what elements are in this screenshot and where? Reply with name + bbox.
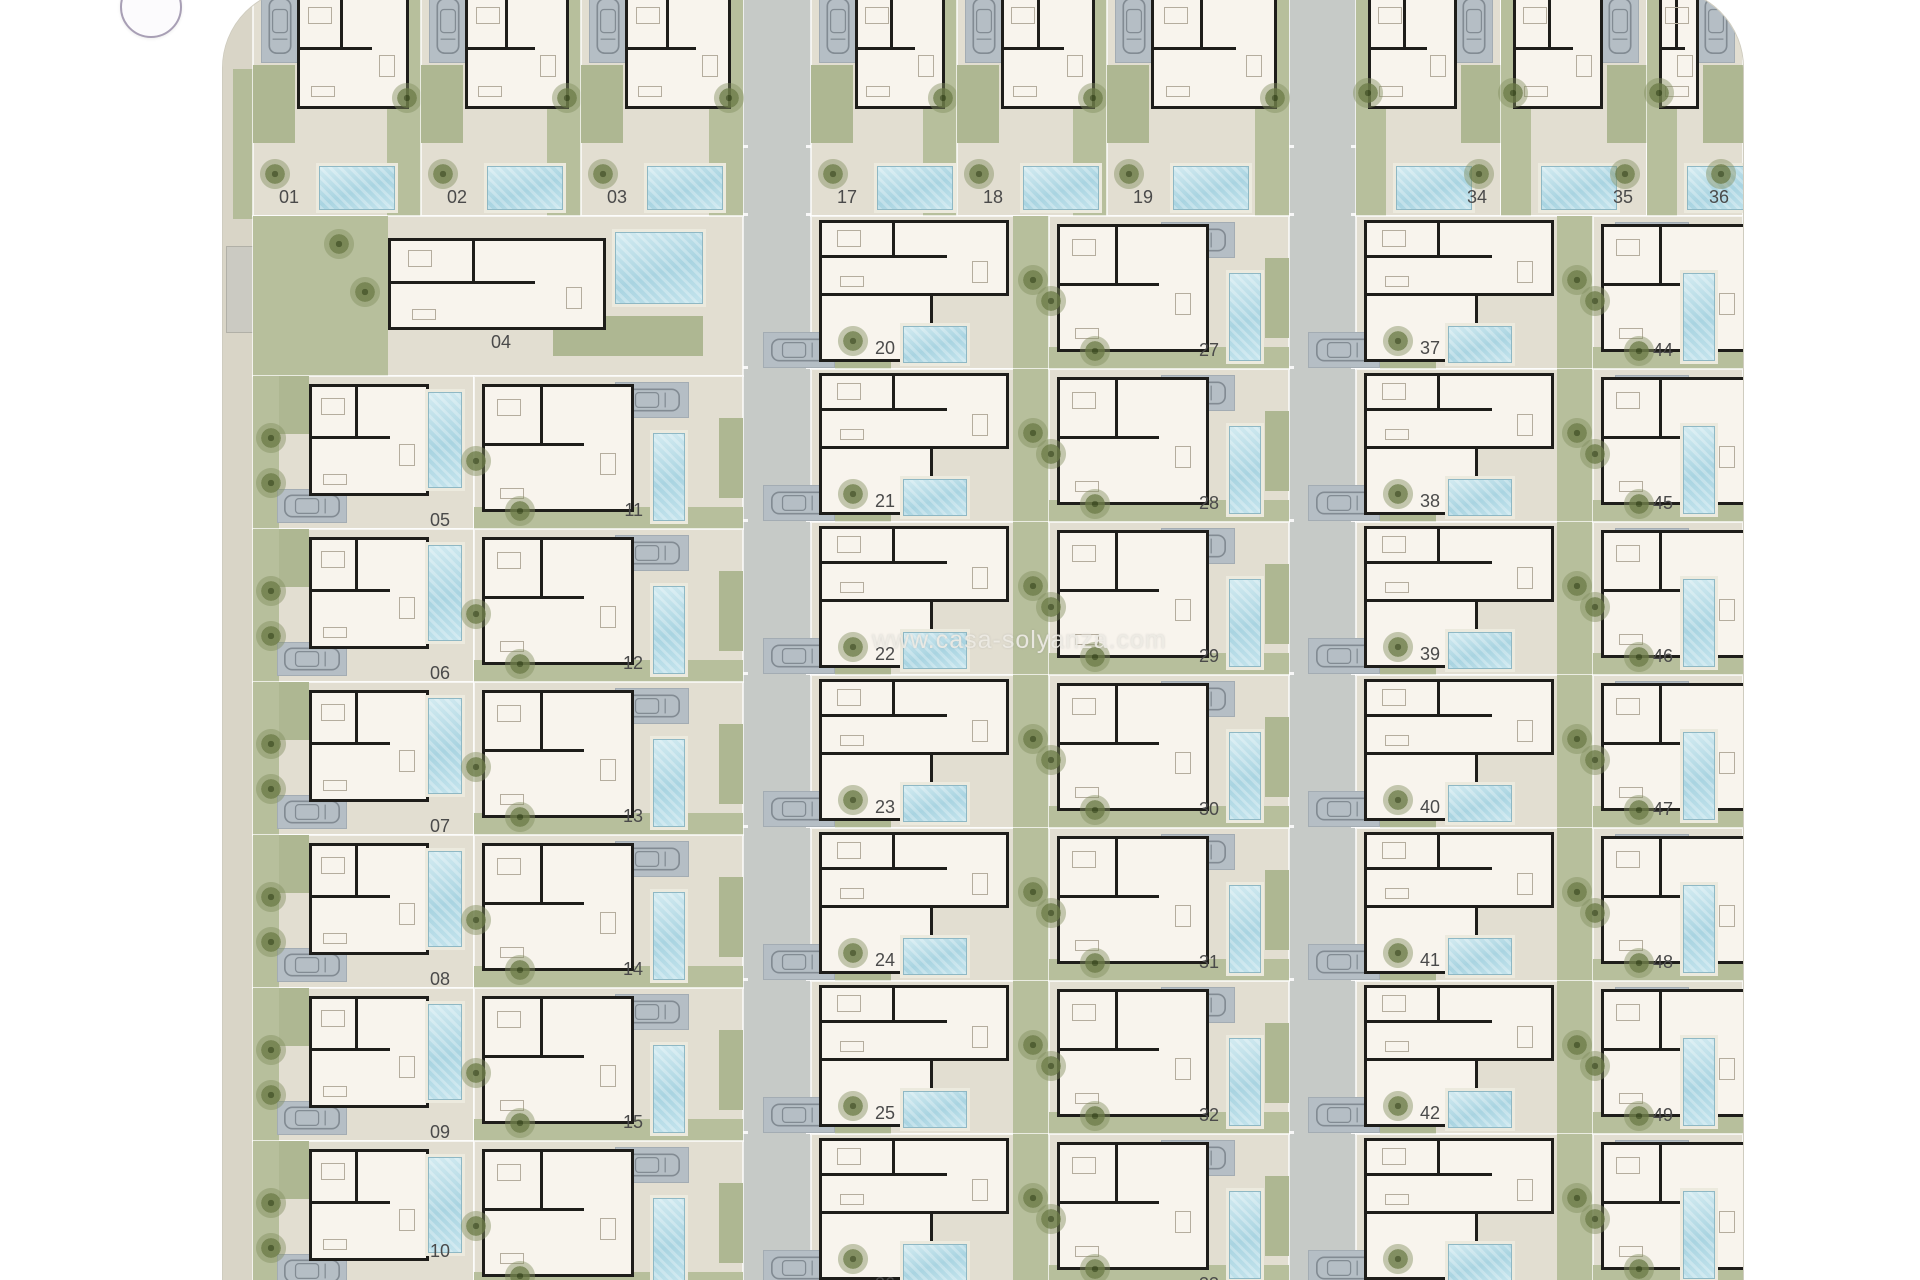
garden-area (1461, 65, 1501, 143)
swimming-pool (428, 545, 462, 641)
interior-wall (822, 867, 947, 870)
furniture-icon (1382, 995, 1406, 1012)
interior-wall (540, 540, 543, 596)
interior-wall (1060, 436, 1159, 439)
villa-plot: 02 (421, 0, 581, 216)
plot-number-label: 40 (1420, 797, 1440, 818)
villa-plot: 45 (1593, 369, 1743, 522)
plot-number-label: 10 (430, 1241, 450, 1262)
swimming-pool (1683, 732, 1715, 820)
house-floor-plan (1364, 832, 1554, 908)
tree-icon (253, 1032, 289, 1068)
interior-wall (892, 376, 895, 408)
plot-number-label: 04 (491, 332, 511, 353)
furniture-icon (837, 995, 861, 1012)
interior-wall (628, 47, 696, 50)
car-icon (1702, 0, 1730, 57)
plot-number-label: 28 (1199, 493, 1219, 514)
tree-icon (347, 274, 383, 310)
furniture-icon (1175, 599, 1191, 621)
house-floor-plan (819, 220, 1009, 296)
furniture-icon (497, 1011, 521, 1028)
furniture-icon (600, 606, 616, 628)
furniture-icon (1072, 392, 1096, 409)
swimming-pool (428, 1004, 462, 1100)
swimming-pool (653, 739, 685, 827)
swimming-pool (1448, 632, 1512, 669)
furniture-icon (1382, 536, 1406, 553)
tree-icon (835, 629, 871, 665)
car-icon (281, 951, 343, 979)
furniture-icon (1072, 698, 1096, 715)
garden-area (1265, 1023, 1289, 1103)
furniture-icon (837, 230, 861, 247)
tree-icon (502, 493, 538, 529)
furniture-icon (321, 704, 345, 721)
furniture-icon (1385, 429, 1409, 440)
house-floor-plan (1364, 679, 1554, 755)
plot-number-label: 18 (983, 187, 1003, 208)
plot-number-label: 39 (1420, 644, 1440, 665)
swimming-pool (903, 1091, 967, 1128)
tree-icon (1077, 1098, 1113, 1134)
swimming-pool (1448, 938, 1512, 975)
interior-wall (1437, 988, 1440, 1020)
villa-plot: 49 (1593, 981, 1743, 1134)
swimming-pool (1229, 426, 1261, 514)
furniture-icon (840, 735, 864, 746)
furniture-icon (1175, 1211, 1191, 1233)
furniture-icon (1616, 239, 1640, 256)
tree-icon (253, 420, 289, 456)
watermark: www.casa-solyanza.com (872, 626, 1167, 655)
villa-plot: 37 (1356, 216, 1593, 369)
interior-wall (1659, 839, 1662, 895)
nav-arrow-button[interactable] (120, 0, 182, 38)
villa-plot: 47 (1593, 675, 1743, 828)
villa-plot (474, 1141, 743, 1280)
furniture-icon (837, 689, 861, 706)
interior-wall (340, 0, 343, 47)
villa-plot: 05 (253, 376, 474, 529)
furniture-icon (1719, 1211, 1735, 1233)
plot-number-label: 35 (1613, 187, 1633, 208)
furniture-icon (600, 759, 616, 781)
swimming-pool (653, 892, 685, 980)
villa-plot: 41 (1356, 828, 1593, 981)
tree-icon (1621, 945, 1657, 981)
furniture-icon (497, 399, 521, 416)
tree-icon (253, 1185, 289, 1221)
garden-area (719, 418, 743, 498)
furniture-icon (840, 429, 864, 440)
interior-wall (1516, 47, 1573, 50)
furniture-icon (972, 1179, 988, 1201)
tree-icon (253, 924, 289, 960)
villa-plot: 12 (474, 529, 743, 682)
plot-number-label: 45 (1653, 493, 1673, 514)
plot-number-label: 21 (875, 491, 895, 512)
driveway (1115, 0, 1153, 63)
villa-plot: 15 (474, 988, 743, 1141)
plot-number-label: 17 (837, 187, 857, 208)
furniture-icon (840, 276, 864, 287)
plot-number-label: 07 (430, 816, 450, 837)
plot-number-label: 32 (1199, 1105, 1219, 1126)
interior-wall (822, 1173, 947, 1176)
furniture-icon (1385, 1194, 1409, 1205)
villa-plot: 44 (1593, 216, 1743, 369)
car-icon (594, 0, 622, 57)
villa-plot: 35 (1501, 0, 1647, 216)
tree-icon (1077, 486, 1113, 522)
swimming-pool (1683, 885, 1715, 973)
plot-number-label: 11 (624, 500, 643, 521)
villa-plot: 27 (1049, 216, 1289, 369)
furniture-icon (837, 383, 861, 400)
swimming-pool (487, 166, 563, 210)
garden-area (581, 65, 623, 143)
furniture-icon (323, 1086, 347, 1097)
interior-wall (822, 561, 947, 564)
plot-number-label: 33 (1199, 1274, 1219, 1280)
interior-wall (1115, 686, 1118, 742)
furniture-icon (1719, 293, 1735, 315)
house-floor-plan (1601, 1142, 1744, 1270)
interior-wall (1367, 255, 1492, 258)
car-icon (266, 0, 294, 57)
interior-wall (300, 47, 372, 50)
interior-wall (1371, 47, 1427, 50)
house-floor-plan (482, 996, 634, 1124)
interior-wall (1115, 380, 1118, 436)
swimming-pool (903, 326, 967, 363)
tree-icon (1621, 639, 1657, 675)
tree-icon (1380, 782, 1416, 818)
interior-wall (1115, 533, 1118, 589)
furniture-icon (566, 287, 582, 309)
interior-wall (1367, 1173, 1492, 1176)
villa-plot: 19 (1107, 0, 1289, 216)
furniture-icon (1175, 1058, 1191, 1080)
tree-icon (1077, 792, 1113, 828)
interior-wall (892, 988, 895, 1020)
interior-wall (312, 436, 390, 439)
tree-icon (253, 1230, 289, 1266)
tree-icon (1621, 1098, 1657, 1134)
interior-wall (312, 895, 390, 898)
interior-wall (312, 742, 390, 745)
car-icon (281, 492, 343, 520)
interior-wall (1367, 867, 1492, 870)
nav-arrow-icon (144, 0, 160, 2)
interior-wall (666, 0, 669, 47)
interior-wall (355, 1152, 358, 1201)
furniture-icon (497, 705, 521, 722)
furniture-icon (972, 414, 988, 436)
swimming-pool (428, 392, 462, 488)
garden-area (719, 571, 743, 651)
tree-icon (1380, 1241, 1416, 1277)
swimming-pool (319, 166, 395, 210)
plot-number-label: 20 (875, 338, 895, 359)
house-floor-plan (309, 384, 429, 496)
interior-wall (1115, 839, 1118, 895)
plot-number-label: 03 (607, 187, 627, 208)
swimming-pool (1229, 273, 1261, 361)
house-floor-plan (1057, 224, 1209, 352)
interior-wall (892, 682, 895, 714)
interior-wall (312, 1048, 390, 1051)
furniture-icon (1175, 446, 1191, 468)
interior-wall (540, 1152, 543, 1208)
furniture-icon (408, 250, 432, 267)
garden-area (253, 65, 295, 143)
plot-number-label: 23 (875, 797, 895, 818)
swimming-pool (1229, 885, 1261, 973)
house-floor-plan (819, 1138, 1009, 1214)
swimming-pool (1683, 579, 1715, 667)
furniture-icon (1072, 545, 1096, 562)
garden-area (957, 65, 999, 143)
plot-number-label: 26 (875, 1274, 895, 1280)
plot-number-label: 19 (1133, 187, 1153, 208)
plot-number-label: 02 (447, 187, 467, 208)
interior-wall (822, 1020, 947, 1023)
furniture-icon (972, 567, 988, 589)
furniture-icon (837, 1148, 861, 1165)
interior-wall (1154, 47, 1236, 50)
swimming-pool (653, 1198, 685, 1280)
driveway (1455, 0, 1493, 63)
furniture-icon (600, 912, 616, 934)
garden-area (719, 877, 743, 957)
tree-icon (253, 573, 289, 609)
swimming-pool (653, 586, 685, 674)
tree-icon (1077, 945, 1113, 981)
plot-number-label: 37 (1420, 338, 1440, 359)
furniture-icon (840, 582, 864, 593)
house-floor-plan (819, 526, 1009, 602)
furniture-icon (321, 1010, 345, 1027)
swimming-pool (428, 698, 462, 794)
furniture-icon (1719, 752, 1735, 774)
furniture-icon (972, 1026, 988, 1048)
interior-wall (1437, 682, 1440, 714)
furniture-icon (497, 858, 521, 875)
villa-plot: 13 (474, 682, 743, 835)
furniture-icon (1385, 888, 1409, 899)
interior-wall (1115, 1145, 1118, 1201)
tree-icon (1380, 1088, 1416, 1124)
driveway (819, 0, 857, 63)
tree-icon (253, 879, 289, 915)
villa-plot (1356, 1134, 1593, 1280)
swimming-pool (1229, 1191, 1261, 1279)
swimming-pool (1448, 326, 1512, 363)
garden-area (811, 65, 853, 143)
swimming-pool (1683, 273, 1715, 361)
interior-wall (1367, 1020, 1492, 1023)
villa-plot: 33 (1049, 1134, 1289, 1280)
villa-plot: 34 (1356, 0, 1501, 216)
interior-wall (1060, 742, 1159, 745)
interior-wall (1367, 408, 1492, 411)
interior-wall (1004, 47, 1064, 50)
furniture-icon (866, 86, 890, 97)
house-floor-plan (388, 238, 606, 330)
furniture-icon (1175, 905, 1191, 927)
furniture-icon (1385, 735, 1409, 746)
tree-icon (711, 80, 747, 116)
plot-number-label: 44 (1653, 340, 1673, 361)
furniture-icon (1576, 55, 1592, 77)
plot-number-label: 36 (1709, 187, 1729, 208)
furniture-icon (399, 903, 415, 925)
villa-plot: 38 (1356, 369, 1593, 522)
furniture-icon (837, 842, 861, 859)
furniture-icon (1719, 446, 1735, 468)
furniture-icon (1166, 86, 1190, 97)
furniture-icon (1385, 1041, 1409, 1052)
villa-plot: 46 (1593, 522, 1743, 675)
furniture-icon (308, 7, 332, 24)
furniture-icon (1523, 7, 1547, 24)
furniture-icon (1164, 7, 1188, 24)
interior-wall (1659, 227, 1662, 283)
garden-area (1265, 411, 1289, 491)
furniture-icon (1011, 7, 1035, 24)
house-floor-plan (1601, 224, 1744, 352)
swimming-pool (903, 1244, 967, 1280)
swimming-pool (428, 851, 462, 947)
house-floor-plan (819, 985, 1009, 1061)
swimming-pool (653, 433, 685, 521)
furniture-icon (1517, 720, 1533, 742)
furniture-icon (1517, 414, 1533, 436)
interior-wall (1060, 895, 1159, 898)
plot-number-label: 05 (430, 510, 450, 531)
interior-wall (485, 1208, 584, 1211)
villa-plot: 23 (811, 675, 1049, 828)
tree-icon (1641, 75, 1677, 111)
villa-plot: 11 (474, 376, 743, 529)
garden-area (1107, 65, 1149, 143)
house-floor-plan (1364, 1138, 1554, 1214)
plot-number-label: 27 (1199, 340, 1219, 361)
interior-wall (1403, 0, 1406, 47)
furniture-icon (399, 1056, 415, 1078)
swimming-pool (1683, 1038, 1715, 1126)
swimming-pool (903, 785, 967, 822)
villa-plot: 31 (1049, 828, 1289, 981)
tree-icon (835, 782, 871, 818)
villa-plot: 36 (1647, 0, 1743, 216)
house-floor-plan (1364, 526, 1554, 602)
tree-icon (253, 618, 289, 654)
furniture-icon (1517, 1179, 1533, 1201)
furniture-icon (1378, 7, 1402, 24)
interior-wall (892, 223, 895, 255)
villa-plot: 48 (1593, 828, 1743, 981)
interior-wall (485, 1055, 584, 1058)
furniture-icon (840, 1194, 864, 1205)
plot-number-label: 42 (1420, 1103, 1440, 1124)
furniture-icon (311, 86, 335, 97)
villa-plot: 20 (811, 216, 1049, 369)
furniture-icon (1517, 873, 1533, 895)
plot-number-label: 46 (1653, 646, 1673, 667)
furniture-icon (476, 7, 500, 24)
villa-plot: 21 (811, 369, 1049, 522)
interior-wall (1437, 529, 1440, 561)
house-floor-plan (482, 384, 634, 512)
tree-icon (1077, 1251, 1113, 1280)
furniture-icon (379, 55, 395, 77)
driveway (261, 0, 299, 63)
interior-wall (1367, 714, 1492, 717)
interior-wall (355, 999, 358, 1048)
house-floor-plan (309, 843, 429, 955)
house-floor-plan (1057, 683, 1209, 811)
plot-number-label: 12 (623, 653, 643, 674)
furniture-icon (1616, 851, 1640, 868)
swimming-pool (428, 1157, 462, 1253)
interior-wall (1659, 380, 1662, 436)
furniture-icon (840, 1041, 864, 1052)
tree-icon (1621, 333, 1657, 369)
furniture-icon (323, 933, 347, 944)
swimming-pool (1023, 166, 1099, 210)
interior-wall (312, 1201, 390, 1204)
villa-plot: 06 (253, 529, 474, 682)
furniture-icon (321, 551, 345, 568)
house-floor-plan (1364, 373, 1554, 449)
plot-number-label: 09 (430, 1122, 450, 1143)
swimming-pool (1173, 166, 1249, 210)
house-floor-plan (1601, 683, 1744, 811)
garden-area (719, 724, 743, 804)
furniture-icon (1385, 276, 1409, 287)
tree-icon (1621, 1251, 1657, 1280)
furniture-icon (1072, 851, 1096, 868)
tree-icon (1380, 476, 1416, 512)
villa-plot: 32 (1049, 981, 1289, 1134)
garden-area (1607, 65, 1647, 143)
plot-number-label: 41 (1420, 950, 1440, 971)
interior-wall (892, 1141, 895, 1173)
tree-icon (835, 935, 871, 971)
house-floor-plan (1364, 985, 1554, 1061)
house-floor-plan (309, 996, 429, 1108)
interior-wall (1060, 283, 1159, 286)
furniture-icon (540, 55, 556, 77)
garden-area (1265, 1176, 1289, 1256)
interior-wall (485, 443, 584, 446)
swimming-pool (1683, 426, 1715, 514)
page: 01 (0, 0, 1920, 1280)
furniture-icon (1677, 55, 1693, 77)
swimming-pool (1683, 1191, 1715, 1279)
interior-wall (355, 846, 358, 895)
garden-area (719, 1030, 743, 1110)
tree-icon (253, 726, 289, 762)
furniture-icon (1616, 698, 1640, 715)
furniture-icon (1665, 7, 1689, 24)
plot-number-label: 06 (430, 663, 450, 684)
house-floor-plan (309, 690, 429, 802)
plot-number-label: 14 (623, 959, 643, 980)
